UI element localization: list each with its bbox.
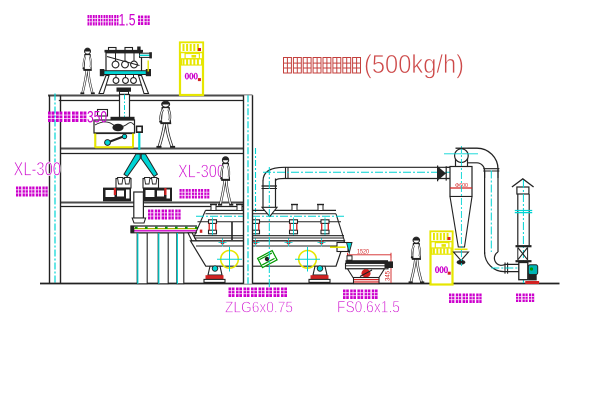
svg-text:ZLG6x0.75: ZLG6x0.75: [225, 300, 293, 317]
svg-text:345: 345: [386, 270, 392, 281]
svg-text:FS0.6x1.5: FS0.6x1.5: [337, 299, 400, 317]
svg-text:1.5: 1.5: [119, 12, 136, 30]
svg-text:350: 350: [87, 109, 107, 127]
svg-text:1520: 1520: [357, 250, 370, 256]
svg-text:(500kg/h): (500kg/h): [364, 51, 464, 79]
svg-text:XL-300: XL-300: [178, 161, 225, 182]
svg-text:XL-300: XL-300: [14, 160, 62, 181]
